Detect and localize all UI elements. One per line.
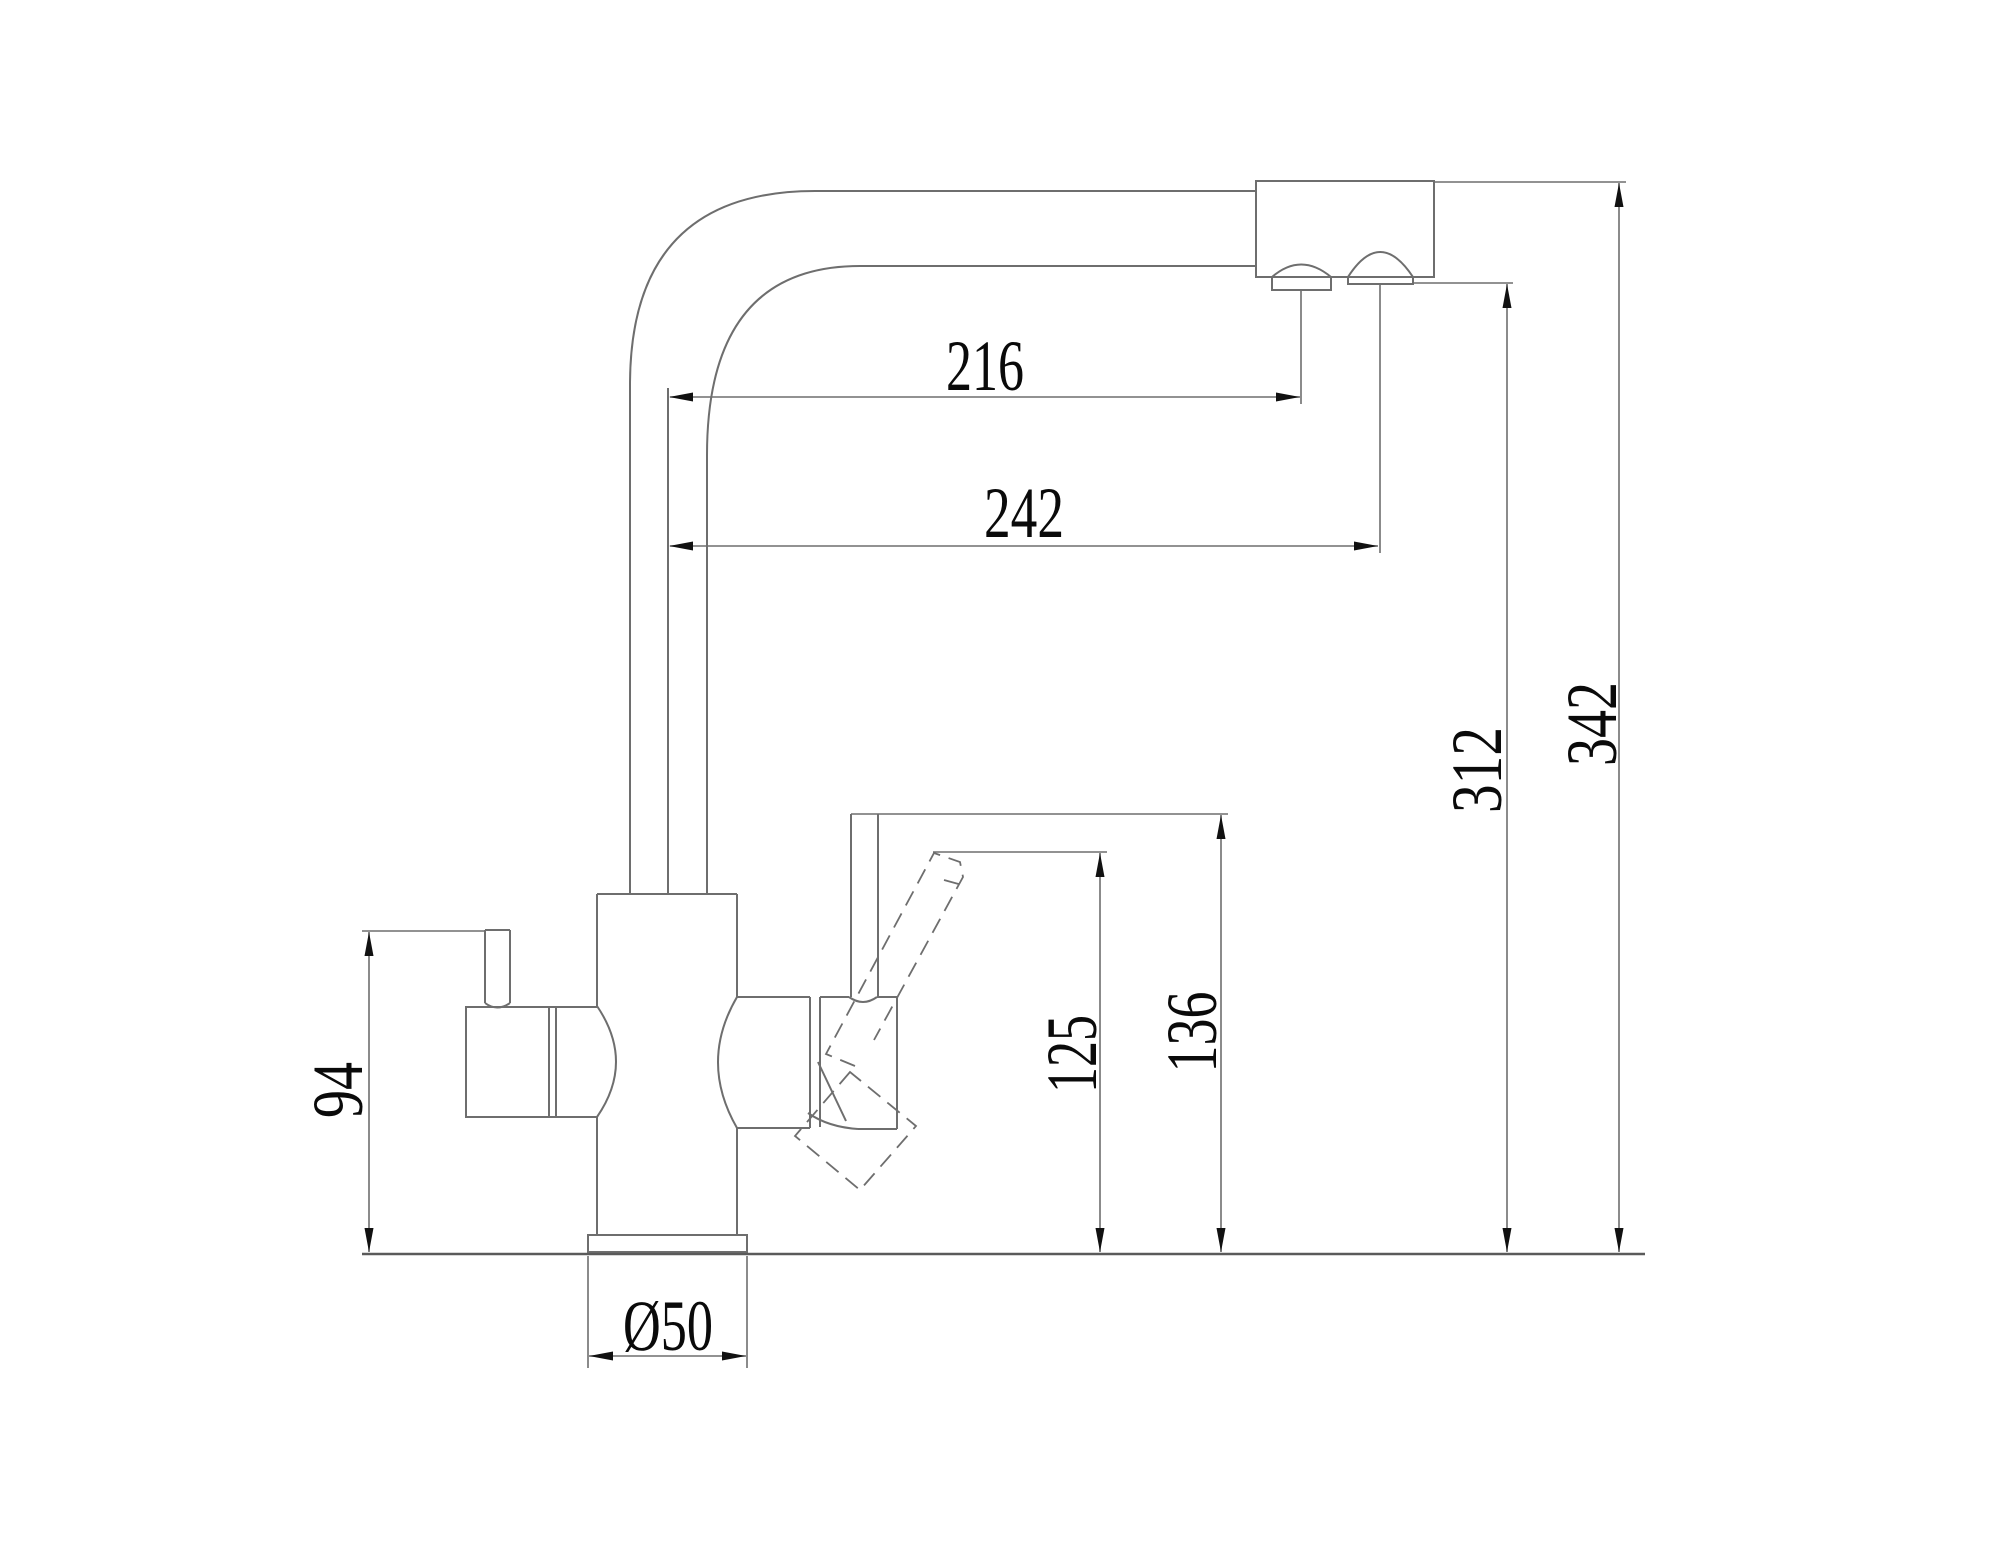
dimension-125: 125 <box>933 852 1112 1252</box>
filtered-outlet-dome <box>1272 265 1331 278</box>
body-right-waist-arc <box>718 997 737 1128</box>
filtered-outlet-ring <box>1272 277 1331 290</box>
spray-head-body <box>1256 181 1434 277</box>
technical-drawing-canvas: 216 242 312 342 <box>0 0 2000 1545</box>
handle-body-top <box>820 997 897 1002</box>
base-flange <box>588 1235 747 1252</box>
dim-d50-arrow-right <box>722 1352 746 1361</box>
dimensions: 216 242 312 342 <box>298 182 1632 1368</box>
dim-342-label: 342 <box>1552 682 1632 766</box>
dim-94-arrow-top <box>365 932 374 956</box>
dimension-312: 312 <box>1414 283 1517 1252</box>
valve-body <box>466 1007 597 1117</box>
dim-d50-label: Ø50 <box>623 1286 713 1366</box>
handle-raised-notch-dashed <box>944 880 966 886</box>
body-left-waist-arc <box>597 1006 616 1117</box>
dim-242-arrow-right <box>1354 542 1378 551</box>
faucet-body <box>588 894 747 1252</box>
dim-242-arrow-left <box>669 542 693 551</box>
dimension-216: 216 <box>669 290 1301 406</box>
mixer-handle <box>737 814 897 1129</box>
dim-342-arrow-bottom <box>1615 1228 1624 1252</box>
dimension-242: 242 <box>669 285 1380 553</box>
valve-collar <box>549 1007 556 1117</box>
side-filter-valve <box>466 930 597 1117</box>
dim-94-arrow-bottom <box>365 1228 374 1252</box>
dim-312-arrow-bottom <box>1503 1228 1512 1252</box>
dim-d50-arrow-left <box>589 1352 613 1361</box>
dim-125-label: 125 <box>1032 1015 1112 1093</box>
aerator-dome <box>1348 252 1413 277</box>
aerator-ring <box>1348 277 1413 284</box>
dimension-342: 342 <box>1434 182 1632 1252</box>
dim-125-arrow-bottom <box>1096 1228 1105 1252</box>
dim-125-arrow-top <box>1096 853 1105 877</box>
dim-136-label: 136 <box>1152 992 1232 1073</box>
spray-head <box>1256 181 1434 290</box>
handle-mount <box>737 997 820 1128</box>
dim-216-arrow-right <box>1276 393 1300 402</box>
handle-swing-radius-line <box>818 1062 846 1121</box>
dim-136-arrow-top <box>1217 815 1226 839</box>
dim-136-arrow-bottom <box>1217 1228 1226 1252</box>
dimension-94: 94 <box>298 931 484 1252</box>
dimension-base-diameter: Ø50 <box>588 1256 747 1368</box>
handle-body-bottom <box>808 1113 897 1129</box>
dim-242-label: 242 <box>984 473 1064 553</box>
drawing-sheet: 216 242 312 342 <box>0 0 2000 1545</box>
dim-312-arrow-top <box>1503 284 1512 308</box>
dim-216-arrow-left <box>669 393 693 402</box>
spout-outer-profile <box>630 191 1256 894</box>
dim-216-label: 216 <box>946 326 1024 406</box>
dim-342-arrow-top <box>1615 183 1624 207</box>
valve-lever-stem <box>485 930 510 1003</box>
dim-312-label: 312 <box>1437 727 1517 813</box>
handle-raised-dashed <box>826 853 963 1066</box>
dim-94-label: 94 <box>298 1062 378 1118</box>
handle-lever-stem <box>851 814 878 997</box>
